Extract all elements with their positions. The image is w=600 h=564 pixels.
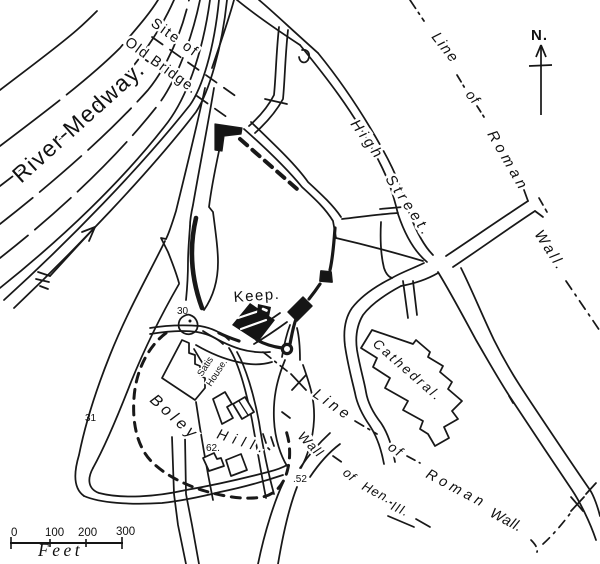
svg-text:0: 0 [11, 527, 17, 539]
svg-text:Keep.: Keep. [233, 286, 281, 306]
svg-text:300: 300 [116, 526, 135, 538]
svg-text:.52: .52 [293, 474, 307, 485]
svg-text:30: 30 [177, 306, 189, 317]
svg-text:31: 31 [85, 413, 97, 424]
svg-text:Feet: Feet [37, 540, 83, 560]
svg-text:200: 200 [78, 527, 97, 539]
svg-text:100: 100 [45, 527, 64, 539]
svg-text:62.: 62. [206, 443, 220, 454]
svg-text:N.: N. [531, 27, 548, 44]
